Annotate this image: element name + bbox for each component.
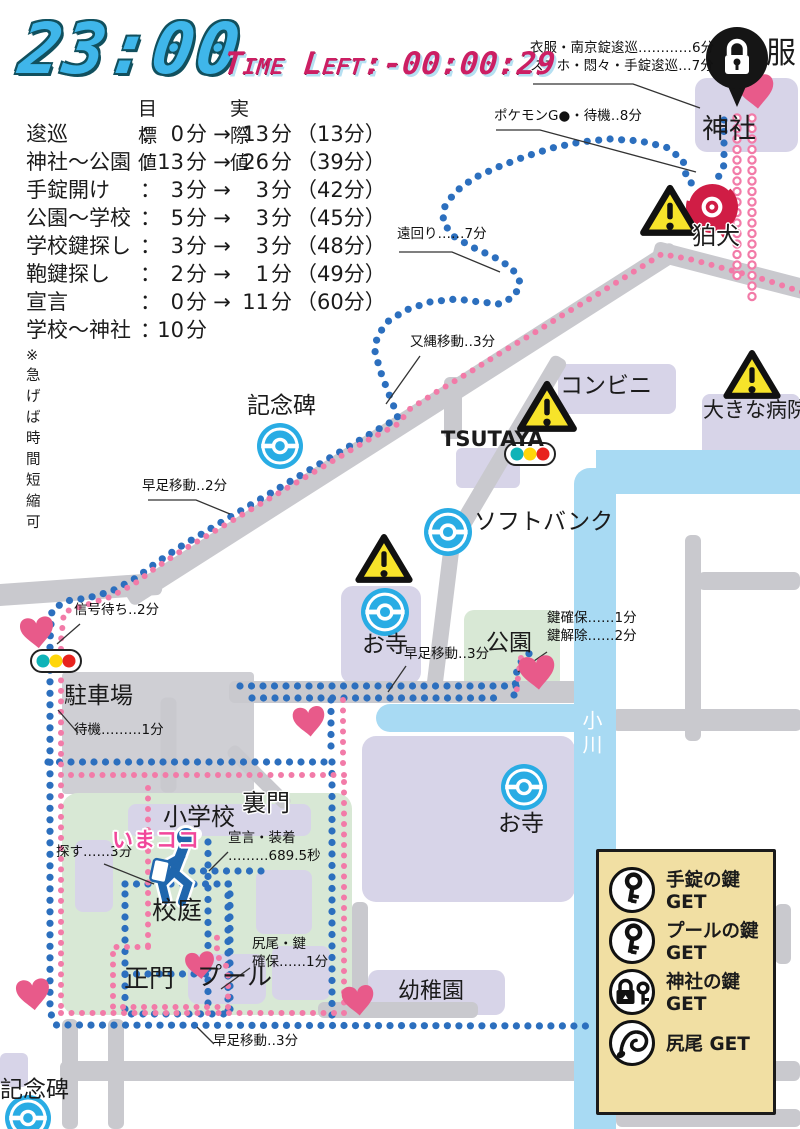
annotation-label: 宣言・装着………689.5秒	[228, 830, 321, 865]
annotation-label: 早足移動‥2分	[142, 478, 227, 496]
annotation-line: スマホ・悶々・手錠逡巡…7分	[530, 58, 714, 76]
legend-item: プールの鍵 GET	[609, 915, 763, 966]
annotation-label: 鍵確保……1分鍵解除……2分	[547, 610, 637, 645]
schedule-cumulative-value: （60分）	[296, 286, 386, 316]
schedule-target-value: 0	[154, 122, 184, 146]
schedule-actual-value: 11	[237, 290, 269, 314]
place-label: 大きな病院	[703, 399, 800, 421]
legend-item: 神社の鍵 GET	[609, 966, 763, 1017]
place-label: 狛犬	[692, 224, 740, 249]
annotation-line: ………689.5秒	[228, 848, 321, 866]
legend-item: 手錠の鍵 GET	[609, 864, 763, 915]
schedule-unit: 分	[271, 174, 292, 204]
legend-item-label: 手錠の鍵 GET	[666, 866, 763, 913]
key-icon	[609, 867, 655, 913]
schedule-cumulative-value: （45分）	[296, 202, 386, 232]
annotation-line: 確保……1分	[252, 954, 328, 972]
schedule-unit: 分	[186, 174, 207, 204]
schedule-cumulative-value: （48分）	[296, 230, 386, 260]
annotation-line: 早足移動‥3分	[213, 1033, 298, 1051]
schedule-arrow: →	[207, 150, 237, 174]
schedule-row: 学校～神社：10分	[26, 314, 426, 342]
lock-key-group	[617, 980, 650, 1004]
schedule-arrow: →	[207, 234, 237, 258]
schedule-cumulative-value: （49分）	[296, 258, 386, 288]
key-tooth	[631, 950, 637, 955]
annotation-line: 早足移動‥3分	[404, 646, 489, 664]
schedule-target-value: 2	[154, 262, 184, 286]
tail-group	[616, 1032, 647, 1060]
schedule-unit: 分	[271, 258, 292, 288]
place-label: 記念碑	[0, 1078, 69, 1102]
schedule-colon: ：	[140, 286, 154, 316]
schedule-row: 鞄鍵探し：2分→1分（49分）	[26, 258, 426, 286]
place-label: 小川	[580, 710, 601, 758]
schedule-colon: ：	[140, 314, 154, 344]
schedule-row-label: 逡巡	[26, 118, 140, 148]
annotation-label: 待機………1分	[74, 722, 164, 740]
schedule-arrow: →	[207, 206, 237, 230]
place-label: 校庭	[152, 898, 202, 924]
schedule-row-label: 鞄鍵探し	[26, 258, 140, 288]
place-label: 神社	[702, 116, 756, 144]
annotation-line: 宣言・装着	[228, 830, 321, 848]
schedule-row-label: 学校鍵探し	[26, 230, 140, 260]
annotation-line: 衣服・南京錠逡巡…………6分	[530, 40, 714, 58]
schedule-colon: ：	[140, 146, 154, 176]
schedule-unit: 分	[186, 202, 207, 232]
key-group	[623, 924, 642, 954]
annotation-line: 鍵確保……1分	[547, 610, 637, 628]
schedule-unit: 分	[186, 314, 207, 344]
schedule-unit: 分	[186, 118, 207, 148]
place-label: お寺	[362, 633, 408, 657]
tail-icon	[609, 1020, 655, 1066]
key-icon	[609, 918, 655, 964]
schedule-target-value: 0	[154, 290, 184, 314]
mini-key-tooth	[644, 998, 649, 1001]
schedule-row: 公園～学校：5分→3分（45分）	[26, 202, 426, 230]
annotation-line: 尻尾・鍵	[252, 936, 328, 954]
place-label: ソフトバンク	[474, 510, 613, 534]
annotation-label: 早足移動‥3分	[404, 646, 489, 664]
schedule-row: 手錠開け：3分→3分（42分）	[26, 174, 426, 202]
place-label: コンビニ	[560, 374, 652, 398]
schedule-unit: 分	[186, 146, 207, 176]
schedule-arrow: →	[207, 290, 237, 314]
schedule-target-value: 5	[154, 206, 184, 230]
schedule-unit: 分	[271, 286, 292, 316]
schedule-colon: ：	[140, 258, 154, 288]
schedule-unit: 分	[186, 258, 207, 288]
annotation-line: 待機………1分	[74, 722, 164, 740]
schedule-rows: 逡巡：0分→13分（13分）神社～公園：13分→26分（39分）手錠開け：3分→…	[26, 118, 426, 342]
schedule-row-label: 手錠開け	[26, 174, 140, 204]
legend-item-label: 尻尾 GET	[666, 1030, 750, 1056]
legend-item-label: プールの鍵 GET	[666, 917, 763, 964]
place-label: TSUTAYA	[441, 428, 544, 450]
place-label: 正門	[124, 966, 174, 992]
key-glyph	[612, 870, 652, 910]
schedule-row-label: 学校～神社	[26, 314, 140, 344]
schedule-actual-value: 26	[237, 150, 269, 174]
place-label: 公園	[486, 631, 532, 655]
schedule-row-label: 神社～公園	[26, 146, 140, 176]
schedule-row-label: 公園～学校	[26, 202, 140, 232]
mini-key-head	[638, 983, 648, 993]
schedule-target-value: 13	[154, 150, 184, 174]
clock-time: 23:00	[14, 8, 246, 90]
schedule-row: 宣言：0分→11分（60分）	[26, 286, 426, 314]
schedule-target-value: 3	[154, 234, 184, 258]
schedule-cumulative-value: （39分）	[296, 146, 386, 176]
annotation-label: ポケモンG●・待機‥8分	[494, 108, 642, 126]
annotation-line: 信号待ち‥2分	[74, 602, 159, 620]
key-tooth	[631, 899, 637, 904]
mini-padlock-shackle	[620, 980, 631, 990]
route-map-infographic: 服神社狛犬コンビニ大きな病院TSUTAYA記念碑ソフトバンクお寺公園駐車場小川お…	[0, 0, 800, 1129]
schedule-actual-value: 3	[237, 206, 269, 230]
annotation-label: 信号待ち‥2分	[74, 602, 159, 620]
place-label: 裏門	[242, 791, 290, 816]
schedule-target-value: 10	[154, 318, 184, 342]
lock-key-icon	[609, 969, 655, 1015]
annotation-line: 鍵解除……2分	[547, 628, 637, 646]
time-left-counter: Time Left:-00:00:29	[222, 46, 557, 82]
annotation-label: 早足移動‥3分	[213, 1033, 298, 1051]
annotation-label: 尻尾・鍵確保……1分	[252, 936, 328, 971]
schedule-actual-value: 3	[237, 178, 269, 202]
annotation-line: ポケモンG●・待機‥8分	[494, 108, 642, 126]
tail-glyph	[612, 1023, 652, 1063]
schedule-row: 逡巡：0分→13分（13分）	[26, 118, 426, 146]
schedule-arrow: →	[207, 178, 237, 202]
schedule-arrow: →	[207, 262, 237, 286]
schedule-colon: ：	[140, 118, 154, 148]
schedule-unit: 分	[271, 118, 292, 148]
schedule-colon: ：	[140, 230, 154, 260]
place-label: お寺	[498, 812, 544, 836]
schedule-row: 学校鍵探し：3分→3分（48分）	[26, 230, 426, 258]
key-glyph	[612, 921, 652, 961]
schedule-unit: 分	[271, 146, 292, 176]
schedule-arrow: →	[207, 122, 237, 146]
schedule-row-label: 宣言	[26, 286, 140, 316]
legend-item: 尻尾 GET	[609, 1017, 763, 1068]
place-label: 服	[766, 38, 796, 70]
schedule-cumulative-value: （42分）	[296, 174, 386, 204]
tail-spiral	[621, 1032, 647, 1054]
schedule-actual-value: 3	[237, 234, 269, 258]
schedule-actual-value: 1	[237, 262, 269, 286]
legend-box: 手錠の鍵 GETプールの鍵 GET神社の鍵 GET尻尾 GET	[596, 849, 776, 1115]
schedule-colon: ：	[140, 202, 154, 232]
legend-item-label: 神社の鍵 GET	[666, 968, 763, 1015]
schedule-unit: 分	[271, 230, 292, 260]
schedule-target-value: 3	[154, 178, 184, 202]
schedule-footnote: ※急げば時間短縮可	[26, 348, 41, 532]
place-label: 幼稚園	[398, 980, 464, 1003]
schedule-cumulative-value: （13分）	[296, 118, 386, 148]
place-label: 記念碑	[247, 394, 316, 418]
key-group	[623, 873, 642, 903]
schedule-unit: 分	[186, 230, 207, 260]
schedule-row: 神社～公園：13分→26分（39分）	[26, 146, 426, 174]
schedule-unit: 分	[186, 286, 207, 316]
current-position-label: いまココ	[112, 824, 200, 854]
schedule-colon: ：	[140, 174, 154, 204]
schedule-actual-value: 13	[237, 122, 269, 146]
schedule-unit: 分	[271, 202, 292, 232]
lock-key-glyph	[612, 972, 652, 1012]
annotation-line: 早足移動‥2分	[142, 478, 227, 496]
place-label: 駐車場	[64, 684, 133, 708]
